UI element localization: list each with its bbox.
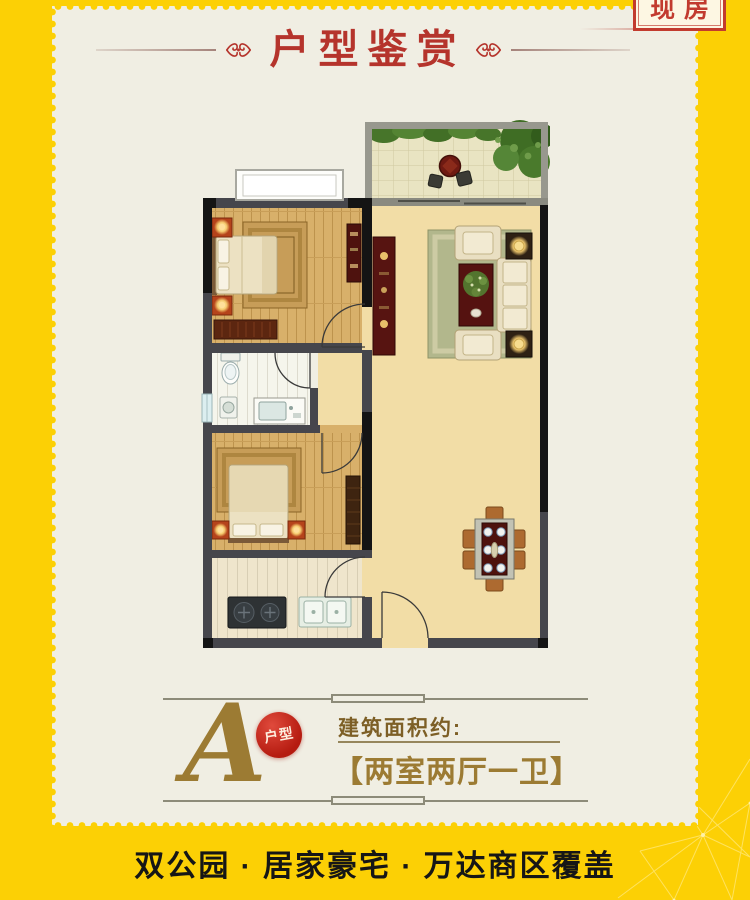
double-kitchen-sink	[299, 597, 351, 627]
toilet	[221, 353, 240, 384]
tv-cabinet	[373, 237, 395, 355]
layout-description: 【两室两厅一卫】	[333, 747, 581, 791]
title-rule-left	[96, 49, 216, 51]
unit-type-letter: A	[183, 694, 267, 794]
two-burner-stove	[228, 597, 286, 628]
unit-type-seal: 户型	[256, 712, 302, 758]
floor-plan	[198, 120, 550, 652]
bay-window	[236, 170, 343, 200]
info-rule-deco-bottom	[331, 796, 425, 805]
bedroom1-tv-cabinet	[347, 224, 361, 282]
area-label: 建筑面积约:	[338, 712, 462, 742]
page-title: 户型鉴赏	[261, 30, 466, 70]
fleuron-ornament-icon	[225, 39, 252, 61]
dining-table	[475, 519, 514, 579]
bathroom-window	[202, 394, 212, 422]
title-rule-right	[511, 49, 631, 51]
poster-page: 户型鉴赏 现房	[0, 0, 750, 900]
coffee-table	[459, 264, 493, 326]
fleuron-ornament-icon	[475, 39, 502, 61]
slogan: 双公园 · 居家豪宅 · 万达商区覆盖	[0, 841, 750, 885]
ready-home-badge: 现房	[633, 0, 726, 31]
unit-type-seal-label: 户型	[262, 723, 295, 748]
header: 户型鉴赏	[96, 26, 630, 74]
info-rule-deco-top	[331, 694, 425, 703]
double-bed-2	[228, 465, 289, 543]
double-bed-1	[212, 235, 277, 295]
wardrobe	[346, 476, 360, 544]
washing-machine	[220, 397, 237, 418]
ready-home-badge-label: 现房	[641, 0, 718, 22]
low-dresser	[214, 320, 277, 339]
area-underline	[338, 741, 560, 743]
wash-basin	[254, 398, 305, 424]
